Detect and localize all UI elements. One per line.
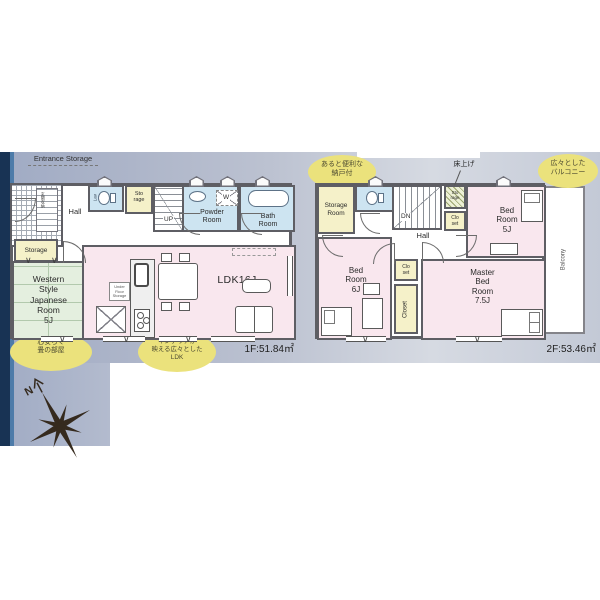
closet-2f-right: Closet	[444, 211, 466, 231]
hall-1f-label: Hall	[59, 208, 91, 217]
under-floor-storage-label: UnderFloorStorage	[110, 285, 129, 299]
bed-icon	[501, 309, 543, 336]
bed-icon	[521, 190, 543, 222]
closet-vertical-label: Closet	[402, 290, 409, 330]
north-arrow-head	[31, 377, 44, 389]
kitchen-sink	[134, 263, 149, 287]
callout-balcony: 広々としたバルコニー	[538, 154, 598, 188]
bathtub-icon	[248, 190, 289, 207]
shoe-cabinet: 玄関収納	[36, 188, 58, 232]
band-top-notch	[357, 152, 480, 158]
bed-room-5j: BedRoom5J	[466, 185, 546, 258]
window	[287, 256, 293, 296]
sliding-door-mark: ∨	[51, 256, 58, 265]
opening-mark: ∨	[362, 335, 369, 344]
stairs-down: DN	[392, 185, 442, 230]
closet-2f-vertical: Closet	[394, 284, 418, 334]
storage-small-label: Storage	[127, 191, 151, 204]
storage-room-2f: StorageRoom	[317, 185, 355, 234]
raised-storage-2f: Storage	[444, 185, 466, 209]
toilet-icon	[98, 191, 110, 205]
coffee-table	[242, 279, 271, 293]
storage-small-1f: Storage	[125, 185, 153, 214]
floorplan-image: Entrance Storage 玄関収納 Hall Lav Storage U…	[0, 0, 600, 600]
stairs-up-label: UP	[163, 216, 174, 224]
toilet-tank-icon	[378, 193, 384, 203]
balcony: Balcony	[543, 186, 585, 334]
master-bed-room-label: MasterBed Room7.5J	[455, 268, 510, 306]
dining-chair	[161, 302, 172, 311]
dining-chair	[179, 302, 190, 311]
japanese-room-label: WesternStyle JapaneseRoom 5J	[14, 274, 83, 326]
floor2-plan: StorageRoom DN Storage Closet BedRoom5J	[315, 183, 545, 339]
genkan-storage-label: 玄関収納	[40, 192, 45, 208]
floor1-plan: 玄関収納 Hall Lav Storage UP PowderRoom W	[10, 183, 292, 339]
raised-floor-note: 床上げ	[446, 161, 482, 169]
master-bed-room: MasterBed Room7.5J	[421, 259, 546, 340]
window	[211, 336, 255, 342]
tv-board	[232, 248, 276, 256]
toilet-icon	[366, 191, 378, 205]
sliding-door-mark: ∨	[25, 256, 32, 265]
stairs-down-label: DN	[400, 213, 411, 221]
toilet-2f	[355, 185, 394, 212]
stove-icon	[134, 309, 150, 332]
opening-mark: ∨	[185, 335, 192, 344]
closet-label: Closet	[446, 216, 464, 228]
storage-1f-label: Storage	[16, 247, 56, 255]
toilet-door-arc	[360, 213, 380, 234]
toilet-tank-icon	[110, 193, 116, 203]
dining-chair	[179, 253, 190, 262]
navy-side-bar	[0, 152, 10, 446]
dining-chair	[161, 253, 172, 262]
kitchen-counter	[130, 259, 155, 338]
under-floor-storage: UnderFloorStorage	[109, 282, 130, 301]
area-label-1f: 1F:51.84㎡	[234, 344, 294, 356]
japanese-room: WesternStyle JapaneseRoom 5J	[12, 261, 85, 340]
north-arrow-line	[37, 383, 42, 393]
sofa	[235, 306, 273, 333]
stairs-up: UP	[153, 185, 184, 232]
opening-mark: ∨	[474, 335, 481, 344]
ldk-room: UnderFloorStorage LDK16J	[82, 245, 296, 340]
compass: N	[12, 372, 104, 464]
master-door-arc	[422, 242, 444, 263]
lavatory-label: Lav	[92, 188, 97, 208]
bed-icon	[321, 307, 352, 336]
hall-2f-label: Hall	[406, 232, 440, 241]
desk-icon	[362, 298, 383, 329]
opening-mark: ∨	[123, 335, 130, 344]
sink-icon	[189, 191, 206, 202]
closet-2f-left: Closet	[394, 259, 418, 281]
window	[41, 336, 73, 342]
shelf-icon	[363, 283, 380, 295]
lavatory-room: Lav	[88, 185, 124, 212]
area-label-2f: 2F:53.46㎡	[536, 344, 596, 356]
closet-label: Closet	[396, 265, 416, 277]
balcony-label: Balcony	[560, 240, 567, 280]
storage-room-label: StorageRoom	[319, 202, 353, 217]
north-label: N	[23, 384, 36, 398]
dresser-icon	[490, 243, 518, 255]
refrigerator-space	[96, 306, 126, 333]
washer-label: W	[222, 194, 230, 202]
entrance-storage-note: Entrance Storage	[28, 155, 98, 166]
dining-table	[158, 263, 198, 300]
opening-mark: ∨	[59, 335, 66, 344]
raised-storage-label: Storage	[446, 190, 464, 201]
